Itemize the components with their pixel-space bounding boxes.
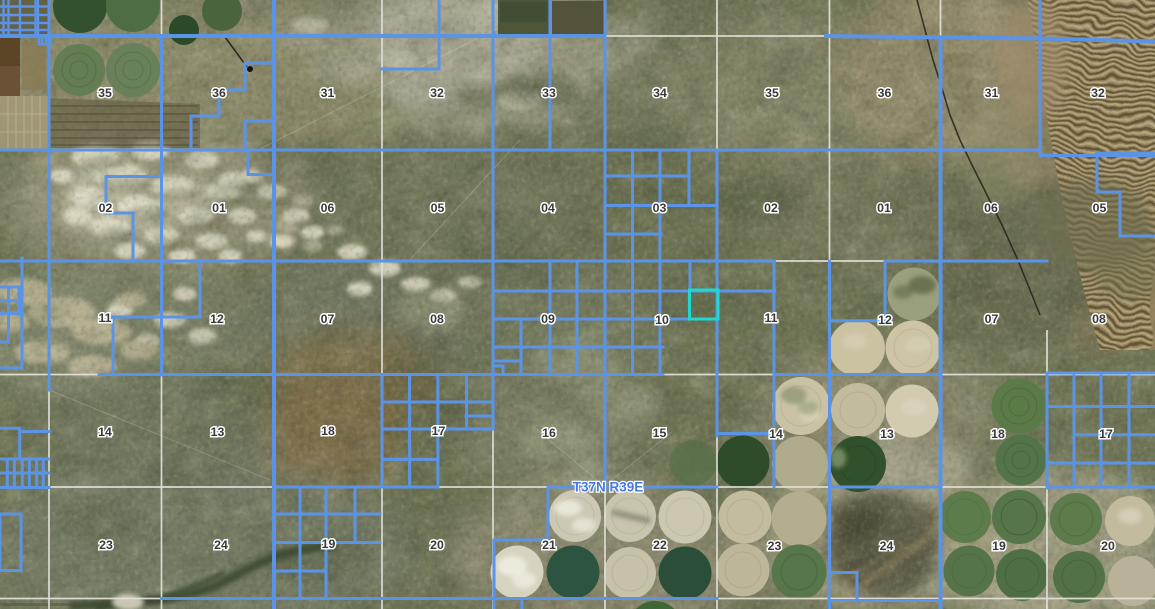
svg-text:10: 10 (655, 313, 669, 327)
svg-text:06: 06 (321, 201, 335, 215)
svg-text:31: 31 (321, 86, 335, 100)
svg-text:20: 20 (430, 538, 444, 552)
svg-text:13: 13 (880, 427, 894, 441)
svg-text:17: 17 (432, 424, 446, 438)
svg-text:14: 14 (98, 425, 112, 439)
svg-text:23: 23 (99, 538, 113, 552)
svg-text:36: 36 (212, 86, 226, 100)
svg-text:03: 03 (653, 201, 667, 215)
svg-text:23: 23 (768, 539, 782, 553)
svg-text:01: 01 (877, 201, 891, 215)
svg-text:16: 16 (542, 426, 556, 440)
svg-text:33: 33 (542, 86, 556, 100)
svg-text:02: 02 (764, 201, 778, 215)
svg-text:19: 19 (322, 537, 336, 551)
svg-text:12: 12 (210, 312, 224, 326)
svg-text:35: 35 (765, 86, 779, 100)
svg-text:01: 01 (212, 201, 226, 215)
svg-text:24: 24 (214, 538, 228, 552)
svg-text:13: 13 (211, 425, 225, 439)
svg-text:04: 04 (541, 201, 555, 215)
svg-text:09: 09 (541, 312, 555, 326)
svg-text:08: 08 (430, 312, 444, 326)
svg-text:19: 19 (992, 539, 1006, 553)
svg-text:05: 05 (1093, 201, 1107, 215)
svg-text:14: 14 (769, 427, 783, 441)
svg-text:18: 18 (321, 424, 335, 438)
svg-text:06: 06 (984, 201, 998, 215)
svg-text:34: 34 (653, 86, 667, 100)
svg-text:35: 35 (98, 86, 112, 100)
svg-text:02: 02 (99, 201, 113, 215)
svg-text:21: 21 (542, 538, 556, 552)
svg-text:15: 15 (653, 426, 667, 440)
svg-text:24: 24 (880, 539, 894, 553)
svg-text:17: 17 (1099, 427, 1113, 441)
svg-text:32: 32 (430, 86, 444, 100)
svg-text:22: 22 (653, 538, 667, 552)
svg-text:31: 31 (985, 86, 999, 100)
svg-text:11: 11 (99, 311, 112, 325)
svg-text:07: 07 (985, 312, 999, 326)
svg-text:08: 08 (1092, 312, 1106, 326)
svg-text:18: 18 (991, 427, 1005, 441)
svg-text:32: 32 (1091, 86, 1105, 100)
svg-text:11: 11 (765, 311, 778, 325)
svg-text:T37N R39E: T37N R39E (573, 480, 644, 495)
svg-text:05: 05 (431, 201, 445, 215)
svg-text:07: 07 (321, 312, 335, 326)
svg-text:20: 20 (1101, 539, 1115, 553)
svg-text:12: 12 (878, 313, 892, 327)
svg-text:36: 36 (878, 86, 892, 100)
